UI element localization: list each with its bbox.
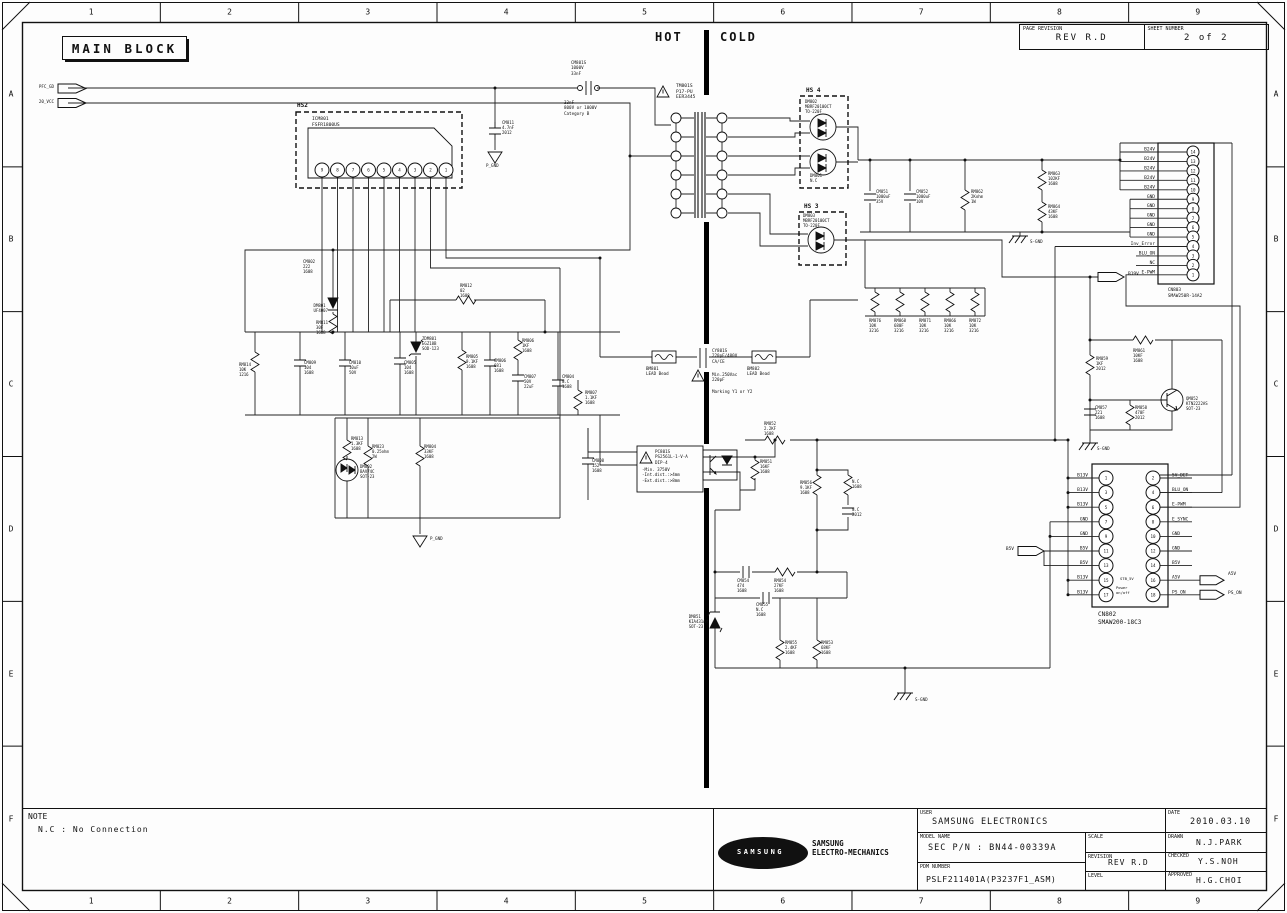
resistor-symbol	[416, 446, 424, 466]
resistor-symbol	[458, 350, 466, 370]
pin-number: 18	[1150, 592, 1156, 597]
pin-number: 16	[1150, 578, 1156, 583]
grid-row-label: B	[9, 235, 14, 244]
junction-dot	[1089, 339, 1092, 342]
scale-label: SCALE	[1088, 834, 1103, 840]
pin-signal-label: B24V	[1144, 175, 1155, 181]
component-label: S-GND	[915, 697, 928, 702]
component-label: QM852 KTN2222AS SOT-23	[1186, 396, 1208, 411]
junction-dot	[754, 456, 757, 459]
component-label: RM858 470F 2012	[1135, 405, 1147, 420]
resistor-symbol	[1038, 202, 1046, 222]
pin-signal-label: B24V	[1144, 147, 1155, 153]
pin-signal-label: B5V	[1080, 546, 1088, 552]
component-label: ZDM801 EGZ18B SOD-123	[422, 336, 439, 351]
pin-signal-label: 5V_DET	[1172, 473, 1189, 479]
junction-dot	[816, 469, 819, 472]
component-label: RM853 68KF 1608	[821, 640, 833, 655]
component-label: RM876 10K 3216	[869, 318, 881, 333]
component-label: RM862 2Kohm 1W	[971, 189, 983, 204]
junction-dot	[964, 159, 967, 162]
component-label: CM804 N.C 1608	[562, 374, 574, 389]
hot-label: HOT	[655, 30, 683, 44]
checked-label: CHECKED	[1168, 853, 1189, 859]
pin-signal-label: E_SYNC	[1172, 516, 1189, 522]
pin-signal-label: E-PWM	[1141, 269, 1155, 275]
component-label: CM805 104 1608	[404, 360, 416, 375]
component-label: RM854 27KF 1608	[774, 578, 786, 593]
resistor-symbol	[896, 292, 904, 312]
component-label: N.C 1608	[852, 479, 862, 489]
component-label: P_GND	[430, 536, 443, 541]
drawn-value: N.J.PARK	[1196, 838, 1243, 847]
junction-dot	[332, 249, 335, 252]
pin-signal-label: GND	[1147, 232, 1155, 238]
component-label: RM811 30F 1608	[316, 320, 328, 335]
pin-signal-label: BLU_ON	[1139, 250, 1156, 256]
model-value: SEC P/N : BN44-00339A	[928, 843, 1056, 853]
junction-dot	[544, 331, 547, 334]
component-label: CM807 50V 22uF	[524, 374, 536, 389]
junction-dot	[494, 87, 497, 90]
junction-dot	[1041, 231, 1044, 234]
component-label: Marking Y1 or Y2	[712, 389, 752, 394]
pin-signal-label: B24V	[1144, 184, 1155, 190]
junction-dot	[1067, 439, 1070, 442]
grid-column-label: 3	[365, 897, 370, 906]
pin-signal-label: B24V	[1144, 165, 1155, 171]
component-label: DM801 UF4007	[314, 303, 328, 313]
grid-row-label: B	[1274, 235, 1279, 244]
sheet-number-cell: SHEET NUMBER 2 of 2	[1145, 25, 1269, 49]
grid-column-label: 7	[919, 8, 924, 17]
component-label: CM854 474 1608	[737, 578, 749, 593]
main-block-title: MAIN BLOCK	[62, 36, 187, 60]
grid-column-label: 8	[1057, 897, 1062, 906]
pin-number: 14	[1190, 150, 1196, 155]
approved-value: H.G.CHOI	[1196, 876, 1243, 885]
samsung-logo-text: SAMSUNG	[737, 848, 784, 856]
junction-dot	[774, 439, 777, 442]
component-label: CM810 10uF 50V	[349, 360, 361, 375]
grid-row-label: D	[1274, 524, 1279, 533]
hs3-title: HS 3	[804, 203, 818, 211]
pin-signal-label: PS_ON	[1172, 589, 1186, 595]
grid-column-label: 9	[1195, 8, 1200, 17]
checked-value: Y.S.NOH	[1198, 857, 1239, 866]
component-label: CM802 222 1608	[303, 259, 315, 274]
level-label: LEVEL	[1088, 873, 1103, 879]
resistor-symbol	[946, 292, 954, 312]
pin-number: 12	[1150, 549, 1156, 554]
junction-dot	[816, 529, 819, 532]
junction-dot	[629, 155, 632, 158]
component-label: -Min. 3750V -Int.dist.:>4mm -Ext.dist.:>…	[642, 467, 680, 483]
grid-row-label: F	[1274, 814, 1279, 823]
grid-column-label: 2	[227, 897, 232, 906]
junction-dot	[1089, 276, 1092, 279]
capacitor-symbol	[512, 375, 524, 381]
grid-row-label: A	[9, 90, 14, 99]
pin-signal-label: BLU_ON	[1172, 487, 1189, 493]
resistor-symbol	[961, 190, 969, 210]
pin-signal-label: B5V	[1080, 560, 1088, 566]
resistor-symbol	[514, 340, 522, 360]
component-label: RM872 10K 3216	[969, 318, 981, 333]
date-value: 2010.03.10	[1190, 817, 1251, 827]
junction-dot	[1049, 535, 1052, 538]
component-label: RM866 10K 3216	[944, 318, 956, 333]
grid-column-label: 1	[89, 897, 94, 906]
pin-signal-label: GND	[1080, 531, 1088, 537]
component-label: S-GND	[1030, 239, 1043, 244]
resistor-symbol	[844, 475, 852, 495]
capacitor-symbol	[743, 566, 749, 578]
grid-column-label: 1	[89, 8, 94, 17]
component-label: RM814 10K 1216	[239, 362, 251, 377]
component-label: BM801 LEAD Bead	[646, 366, 669, 377]
resistor-symbol	[813, 475, 821, 495]
pin-number: 14	[1150, 563, 1156, 568]
resistor-symbol	[1133, 336, 1153, 344]
junction-dot	[1054, 439, 1057, 442]
port-ps-on: PS_ON	[1228, 591, 1242, 597]
page-revision-label: PAGE REVISION	[1023, 26, 1062, 32]
page-revision-cell: PAGE REVISION REV R.D	[1020, 25, 1145, 49]
junction-dot	[1067, 579, 1070, 582]
junction-dot	[1067, 506, 1070, 509]
resistor-symbol	[1086, 355, 1094, 375]
port-20-vcc: 20_VCC	[39, 99, 54, 104]
resistor-symbol	[776, 640, 784, 660]
grid-column-label: 5	[642, 8, 647, 17]
component-label: PC801S PS2561L-1-V-A DIP-4	[655, 449, 688, 465]
note-title: NOTE	[28, 812, 149, 821]
component-label: RM855 2.4KF 1608	[785, 640, 797, 655]
capacitor-symbol	[904, 194, 916, 200]
port-b19v: B19V	[1128, 272, 1139, 278]
pin-signal-label: E-PWM	[1172, 502, 1186, 508]
pin-signal-label: B13V	[1077, 473, 1088, 479]
capacitor-symbol	[864, 194, 876, 200]
component-label: STB_5V	[1120, 577, 1134, 582]
component-label: RM856 9.1KF 1608	[800, 480, 812, 495]
port-pfc-gd: PFC_GD	[39, 84, 54, 89]
component-label: RM859 1KF 2012	[1096, 356, 1108, 371]
grid-column-label: 6	[780, 8, 785, 17]
grid-row-label: A	[1274, 90, 1279, 99]
component-label: TM801S P17-PU EER3445	[676, 84, 695, 101]
cn802-label: CN802 SMAW200-18C3	[1098, 611, 1141, 626]
cn803-label: CN803 SMAW250R-14A2	[1168, 288, 1202, 299]
component-label: CM811 4.7nF 2012	[502, 120, 514, 135]
component-label: 33nF 800V or 1000V Category B	[564, 100, 597, 116]
junction-dot	[1067, 491, 1070, 494]
pin-signal-label: GND	[1147, 194, 1155, 200]
component-label: RM863 102KF 1608	[1048, 171, 1060, 186]
resistor-symbol	[751, 460, 759, 480]
component-label: S-GND	[1097, 446, 1110, 451]
cold-label: COLD	[720, 30, 757, 44]
component-label: CM852 1000uF 10V	[916, 189, 930, 204]
junction-dot	[332, 331, 335, 334]
component-label: CM806 681 1608	[494, 358, 506, 373]
pin-signal-label: GND	[1147, 203, 1155, 209]
component-label: RM851 16KF 1608	[760, 459, 772, 474]
component-label: RM804 33KF 1608	[424, 444, 436, 459]
pin-signal-label: GND	[1147, 222, 1155, 228]
component-label: DM802 MBRF20100CT TO-220F	[805, 99, 832, 114]
junction-dot	[1119, 159, 1122, 162]
pin-number: 17	[1103, 592, 1109, 597]
pin-number: 10	[1190, 187, 1196, 192]
sheet-number-value: 2 of 2	[1145, 33, 1269, 43]
grid-row-label: F	[9, 814, 14, 823]
sheet-number-label: SHEET NUMBER	[1148, 26, 1184, 32]
component-label: RM852 2.2KF 1608	[764, 421, 776, 436]
resistor-symbol	[871, 292, 879, 312]
user-value: SAMSUNG ELECTRONICS	[932, 817, 1048, 827]
component-label: RM868 680F 3216	[894, 318, 906, 333]
pin-signal-label: B13V	[1077, 589, 1088, 595]
grid-row-label: C	[9, 380, 14, 389]
pdm-label: PDM NUMBER	[920, 864, 950, 870]
component-label: RM807 1.1KF 1608	[585, 390, 597, 405]
resistor-symbol	[574, 390, 582, 410]
component-label: Power on/off	[1116, 586, 1130, 595]
component-label: DM802 BAV74C SOT-23	[360, 464, 374, 479]
revision-value: REV R.D	[1108, 858, 1149, 867]
component-label: RM813 1.3KF 1608	[351, 436, 363, 451]
hs2-title: HS2	[297, 102, 308, 110]
junction-dot	[714, 571, 717, 574]
pin-number: 11	[1103, 549, 1109, 554]
junction-dot	[1067, 593, 1070, 596]
pin-signal-label: B13V	[1077, 502, 1088, 508]
pin-signal-label: GND	[1147, 213, 1155, 219]
schematic-sheet: 14B24V13B24V12B24V11B24V10B24V9GND8GND7G…	[0, 0, 1287, 913]
junction-dot	[909, 159, 912, 162]
component-label: CM809 104 1608	[304, 360, 316, 375]
resistor-symbol	[1038, 170, 1046, 190]
component-label: BM802 LEAD Bead	[747, 366, 770, 377]
pin-signal-label: GND	[1172, 531, 1180, 537]
resistor-symbol	[364, 446, 372, 466]
schematic-canvas: 14B24V13B24V12B24V11B24V10B24V9GND8GND7G…	[0, 0, 1287, 913]
resistor-symbol	[813, 640, 821, 660]
port-b5v: B5V	[1006, 547, 1014, 553]
component-label: DM803 MBRF20100CT TO-220F	[803, 213, 830, 228]
junction-dot	[1041, 159, 1044, 162]
hs4-title: HS 4	[806, 87, 820, 95]
pin-signal-label: B5V	[1172, 560, 1180, 566]
component-label: Min.250Vac 220pF	[712, 372, 737, 383]
pin-number: 12	[1190, 169, 1196, 174]
resistor-symbol	[921, 292, 929, 312]
junction-dot	[1067, 477, 1070, 480]
grid-column-label: 9	[1195, 897, 1200, 906]
resistor-symbol	[251, 352, 259, 372]
resistor-symbol	[1126, 405, 1134, 425]
date-label: DATE	[1168, 810, 1180, 816]
approved-label: APPROVED	[1168, 872, 1192, 878]
grid-column-label: 8	[1057, 8, 1062, 17]
user-label: USER	[920, 810, 932, 816]
note-text: N.C : No Connection	[38, 825, 149, 834]
grid-column-label: 6	[780, 897, 785, 906]
component-label: CM857 221 1608	[1095, 405, 1107, 420]
samsung-company-name: SAMSUNG ELECTRO-MECHANICS	[812, 840, 889, 857]
grid-row-label: D	[9, 524, 14, 533]
grid-column-label: 4	[504, 897, 509, 906]
grid-column-label: 3	[365, 8, 370, 17]
grid-row-label: E	[9, 669, 14, 678]
grid-column-label: 7	[919, 897, 924, 906]
grid-column-label: 2	[227, 8, 232, 17]
component-label: CM808 152 1608	[592, 458, 604, 473]
grid-row-label: C	[1274, 380, 1279, 389]
page-revision-value: REV R.D	[1020, 33, 1144, 43]
component-label: CY801S 220pF/400V CA/CE	[712, 348, 737, 364]
grid-column-label: 5	[642, 897, 647, 906]
junction-dot	[599, 257, 602, 260]
pdm-value: PSLF211401A(P3237F1_ASM)	[926, 874, 1056, 884]
junction-dot	[869, 159, 872, 162]
junction-dot	[816, 439, 819, 442]
component-label: N.C 2012	[852, 507, 862, 517]
component-label: RM861 10KF 1608	[1133, 348, 1145, 363]
junction-dot	[904, 667, 907, 670]
port-a5v: A5V	[1228, 572, 1236, 578]
junction-dot	[1089, 399, 1092, 402]
component-label: P_GND	[486, 163, 499, 168]
drawn-label: DRAWN	[1168, 834, 1183, 840]
grid-row-label: E	[1274, 669, 1279, 678]
resistor-symbol	[971, 292, 979, 312]
revision-box: PAGE REVISION REV R.D SHEET NUMBER 2 of …	[1019, 24, 1269, 50]
junction-dot	[816, 571, 819, 574]
model-label: MODEL NAME	[920, 834, 950, 840]
grid-column-label: 4	[504, 8, 509, 17]
pin-number: 15	[1103, 578, 1109, 583]
pin-signal-label: NC	[1150, 260, 1156, 266]
pin-number: 13	[1103, 563, 1109, 568]
component-label: RM864 43KF 1608	[1048, 204, 1060, 219]
pin-signal-label: GND	[1172, 546, 1180, 552]
component-label: ICM801 FSFR1800US	[312, 117, 340, 128]
component-label: RM823 0.25ohm 2W	[372, 444, 389, 459]
component-label: RM806 1KF 1608	[522, 338, 534, 353]
pin-signal-label: A5V	[1172, 575, 1180, 581]
pin-signal-label: B24V	[1144, 156, 1155, 162]
component-label: RM812 02 1608	[460, 283, 472, 298]
pin-signal-label: GND	[1080, 516, 1088, 522]
pin-signal-label: B13V	[1077, 487, 1088, 493]
wires	[68, 88, 1240, 693]
title-block-grid	[22, 808, 1267, 891]
pin-number: 10	[1150, 534, 1156, 539]
component-label: RM805 9.1KF 1608	[466, 354, 478, 369]
pin-signal-label: Inv_Error	[1131, 241, 1156, 247]
component-label: CM801S 1000V 33nF	[571, 60, 586, 76]
pin-number: 13	[1190, 159, 1196, 164]
component-label: DM801 N.C	[810, 173, 822, 183]
pin-signal-label: B13V	[1077, 575, 1088, 581]
component-label: CM851 1000uF 35V	[876, 189, 890, 204]
pin-number: 11	[1190, 178, 1196, 183]
component-label: RM871 10K 3216	[919, 318, 931, 333]
resistor-symbol	[775, 568, 795, 576]
component-label: DM851 KIA431AM SOT-23	[689, 614, 708, 629]
cn803-body	[1158, 143, 1214, 284]
note-block: NOTE N.C : No Connection	[28, 812, 149, 834]
component-label: CM855 N.C 1608	[756, 602, 768, 617]
